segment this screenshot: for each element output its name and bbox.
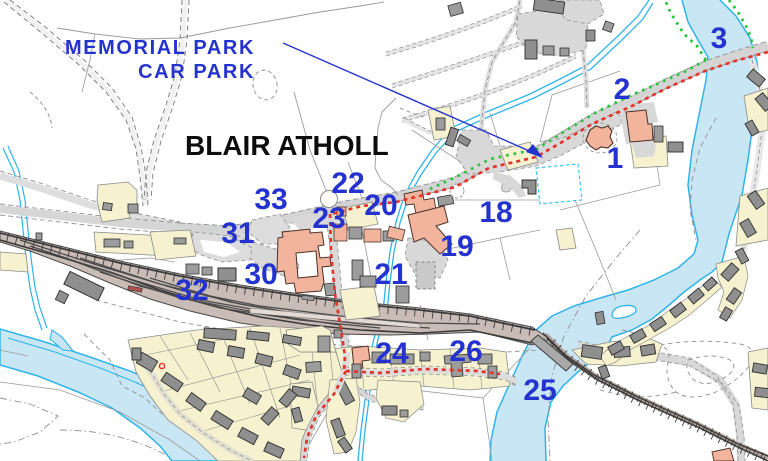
svg-text:18: 18 (479, 196, 512, 229)
svg-text:19: 19 (440, 230, 473, 263)
svg-text:21: 21 (374, 258, 407, 291)
svg-text:24: 24 (375, 337, 409, 370)
svg-text:26: 26 (449, 335, 482, 368)
svg-text:32: 32 (175, 274, 208, 307)
svg-text:CAR PARK: CAR PARK (138, 61, 255, 83)
svg-text:20: 20 (364, 189, 397, 222)
svg-text:2: 2 (614, 73, 631, 106)
svg-text:33: 33 (254, 183, 287, 216)
svg-text:BLAIR ATHOLL: BLAIR ATHOLL (185, 130, 389, 161)
svg-text:25: 25 (523, 374, 556, 407)
svg-text:31: 31 (221, 217, 254, 250)
svg-text:22: 22 (331, 167, 364, 200)
svg-text:3: 3 (711, 22, 728, 55)
svg-text:30: 30 (244, 258, 277, 291)
svg-text:23: 23 (312, 202, 345, 235)
svg-text:1: 1 (607, 142, 624, 175)
svg-text:MEMORIAL PARK: MEMORIAL PARK (65, 37, 255, 59)
